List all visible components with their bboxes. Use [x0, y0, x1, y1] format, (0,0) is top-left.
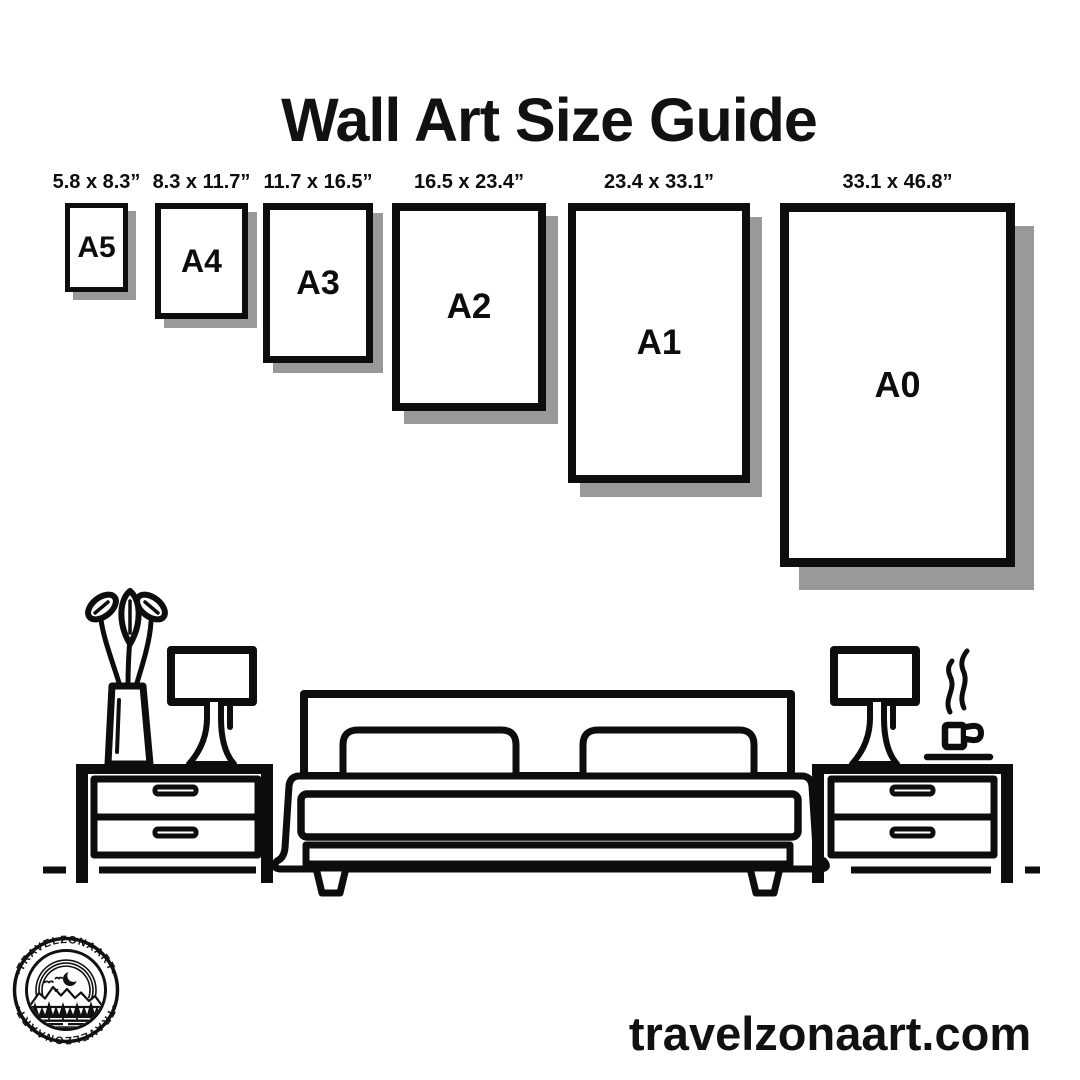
mug-handle — [966, 726, 981, 740]
size-item-a5: 5.8 x 8.3” A5 — [65, 203, 128, 292]
bedroom-illustration — [0, 585, 1080, 920]
mug-body — [945, 725, 964, 747]
size-item-a2: 16.5 x 23.4” A2 — [392, 203, 546, 411]
bed-foot-left — [316, 868, 346, 893]
size-dims-label-a0: 33.1 x 46.8” — [842, 171, 952, 194]
steam — [948, 661, 952, 712]
paper-size-name-a5: A5 — [77, 231, 115, 265]
birds-icon — [44, 978, 63, 984]
plant-vase — [84, 590, 170, 764]
logo-arc-text-top: •TRAVELZONAART• — [13, 934, 120, 977]
paper-box-a5: A5 — [65, 203, 128, 292]
website-url: travelzonaart.com — [629, 1006, 1031, 1061]
vase-highlight — [117, 700, 119, 752]
size-dims-label-a5: 5.8 x 8.3” — [53, 171, 141, 194]
bed-foot-right — [750, 868, 780, 893]
steam — [962, 651, 967, 708]
size-item-a1: 23.4 x 33.1” A1 — [568, 203, 750, 483]
size-dims-label-a3: 11.7 x 16.5” — [264, 171, 373, 194]
size-item-a4: 8.3 x 11.7” A4 — [155, 203, 248, 319]
size-item-a0: 33.1 x 46.8” A0 — [780, 203, 1015, 567]
size-item-a3: 11.7 x 16.5” A3 — [263, 203, 373, 363]
nightstand-right — [812, 769, 1013, 883]
paper-size-name-a4: A4 — [181, 243, 222, 280]
page-title: Wall Art Size Guide — [281, 85, 817, 155]
paper-box-a1: A1 — [568, 203, 750, 483]
size-dims-label-a1: 23.4 x 33.1” — [604, 171, 714, 194]
paper-box-a3: A3 — [263, 203, 373, 363]
nightstand-left — [76, 769, 273, 883]
size-guide-poster: Wall Art Size Guide 5.8 x 8.3” A5 8.3 x … — [0, 0, 1080, 1080]
lamp-left — [171, 650, 253, 764]
paper-size-name-a3: A3 — [296, 264, 339, 303]
paper-box-a0: A0 — [780, 203, 1015, 567]
mattress — [301, 794, 798, 837]
coffee-cup — [927, 651, 990, 757]
size-dims-label-a4: 8.3 x 11.7” — [153, 171, 251, 194]
lamp-left-shade — [171, 650, 253, 702]
brand-logo-badge: •TRAVELZONAART• •TRAVELZONAART• — [4, 928, 128, 1052]
size-dims-label-a2: 16.5 x 23.4” — [414, 171, 524, 194]
paper-box-a2: A2 — [392, 203, 546, 411]
paper-size-name-a1: A1 — [637, 323, 682, 363]
paper-box-a4: A4 — [155, 203, 248, 319]
lamp-right — [834, 650, 916, 764]
logo-arc-text-bottom: •TRAVELZONAART• — [13, 1003, 120, 1046]
paper-size-name-a2: A2 — [447, 287, 492, 327]
vase — [108, 686, 150, 764]
pillow-right — [583, 730, 754, 778]
crescent-moon-icon — [63, 970, 80, 986]
lamp-right-shade — [834, 650, 916, 702]
bed — [275, 694, 827, 893]
paper-size-name-a0: A0 — [874, 364, 920, 406]
bed-base — [306, 845, 790, 864]
pillow-left — [343, 730, 516, 778]
